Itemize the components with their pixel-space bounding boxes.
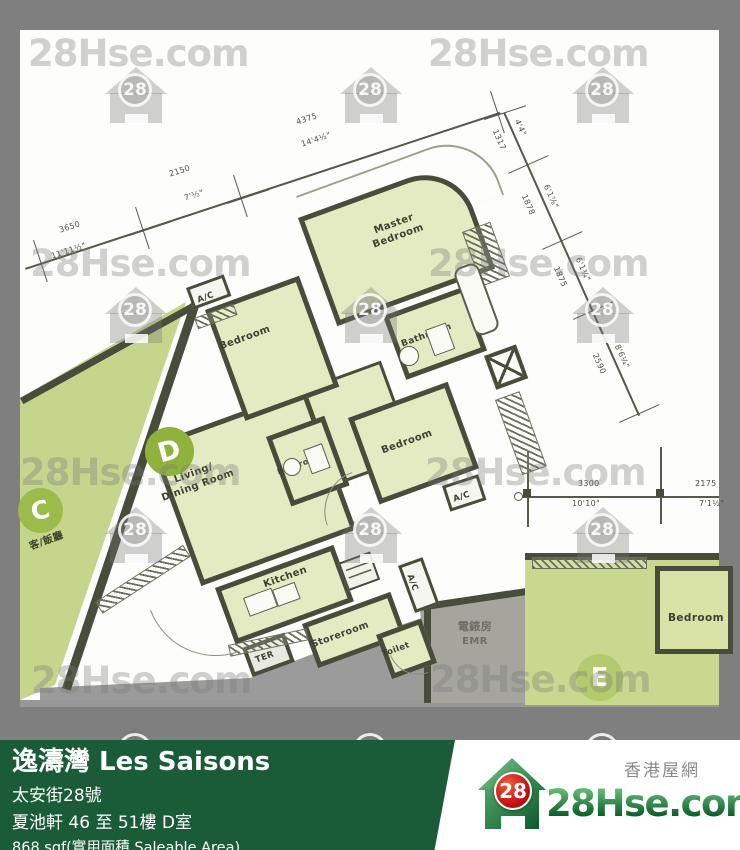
dim-bottom-1-ft: 10'10" <box>572 499 600 508</box>
floorplan-image: A/C A/C A/C TER MasterBedroom Bedroom Ba… <box>0 0 740 850</box>
dimension-ext-line <box>660 447 662 524</box>
dim-bottom-2-ft: 7'1½" <box>699 499 724 508</box>
dimension-node <box>656 489 664 497</box>
unit-e-bedroom <box>655 566 733 654</box>
unit-d-badge: D <box>145 427 194 476</box>
estate-name: 逸濤灣 Les Saisons <box>12 747 455 778</box>
saleable-area: 868 sqf(實用面積 Saleable Area) <box>12 836 455 850</box>
sink <box>399 346 419 366</box>
sink <box>283 458 301 476</box>
logo-site-name: 28Hse.com <box>546 782 740 825</box>
property-info-banner: 逸濤灣 Les Saisons 太安街28號 夏池軒 46 至 51樓 D室 8… <box>0 740 455 850</box>
logo-site-name-zh: 香港屋網 <box>624 756 700 781</box>
hatch-strip <box>532 557 647 569</box>
watermark-house-icon: 28 <box>340 727 402 740</box>
dim-bottom-1-mm: 3300 <box>578 479 600 488</box>
emr-label: 電錶房EMR <box>438 620 512 648</box>
unit-e-bedroom-label: Bedroom <box>668 612 724 625</box>
estate-address: 太安街28號 <box>12 781 455 806</box>
dimension-node <box>514 492 523 501</box>
watermark-house-icon: 28 <box>572 727 634 740</box>
unit-e-badge: E <box>576 654 623 701</box>
watermark-house-icon: 28 <box>105 727 167 740</box>
logo-house-icon: 28 <box>478 758 546 830</box>
dimension-line-bottom <box>520 496 719 498</box>
28hse-logo: 28 香港屋網 28Hse.com <box>476 752 726 842</box>
unit-c-badge: C <box>18 488 63 533</box>
dim-bottom-2-mm: 2175 <box>695 479 717 488</box>
logo-28-badge: 28 <box>494 772 532 810</box>
dimension-node <box>523 489 531 497</box>
block-floor-unit: 夏池軒 46 至 51樓 D室 <box>12 808 455 833</box>
